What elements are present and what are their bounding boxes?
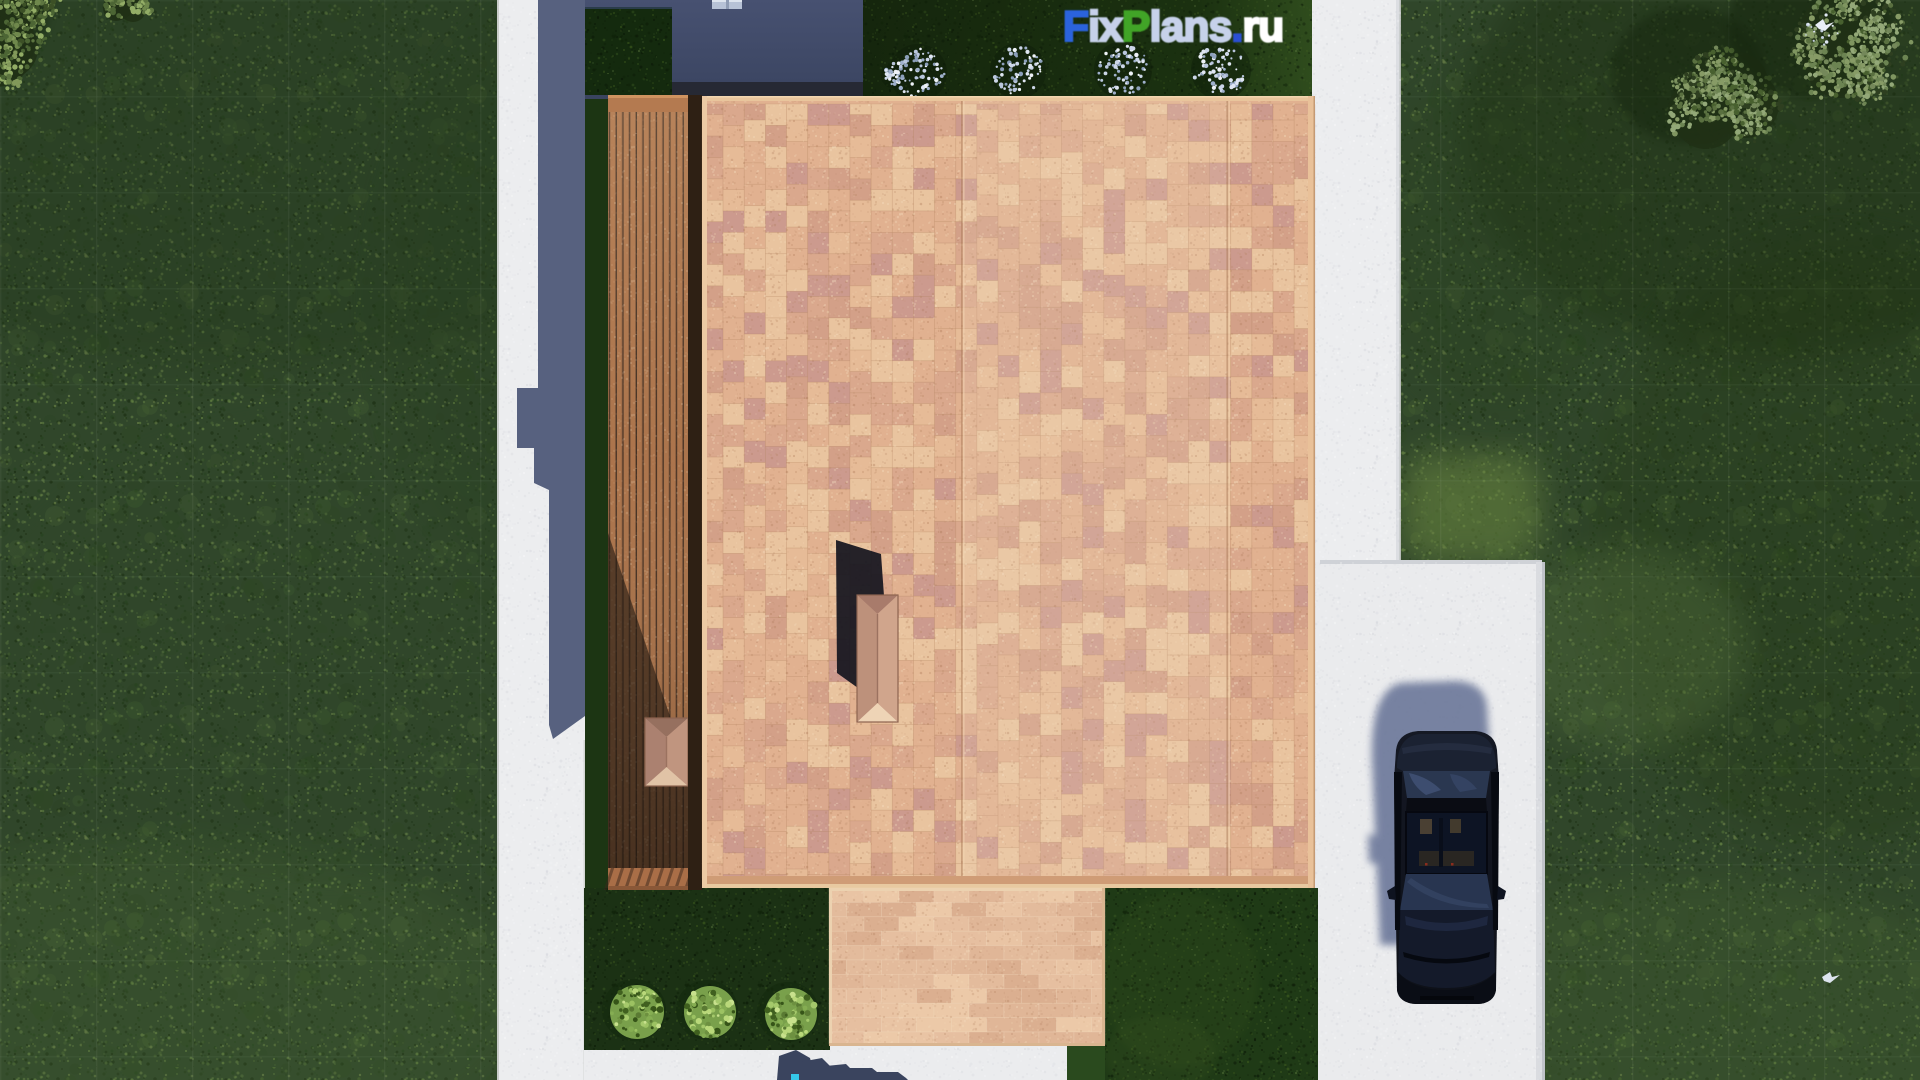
svg-text:FixPlans.ru: FixPlans.ru bbox=[1063, 4, 1283, 51]
